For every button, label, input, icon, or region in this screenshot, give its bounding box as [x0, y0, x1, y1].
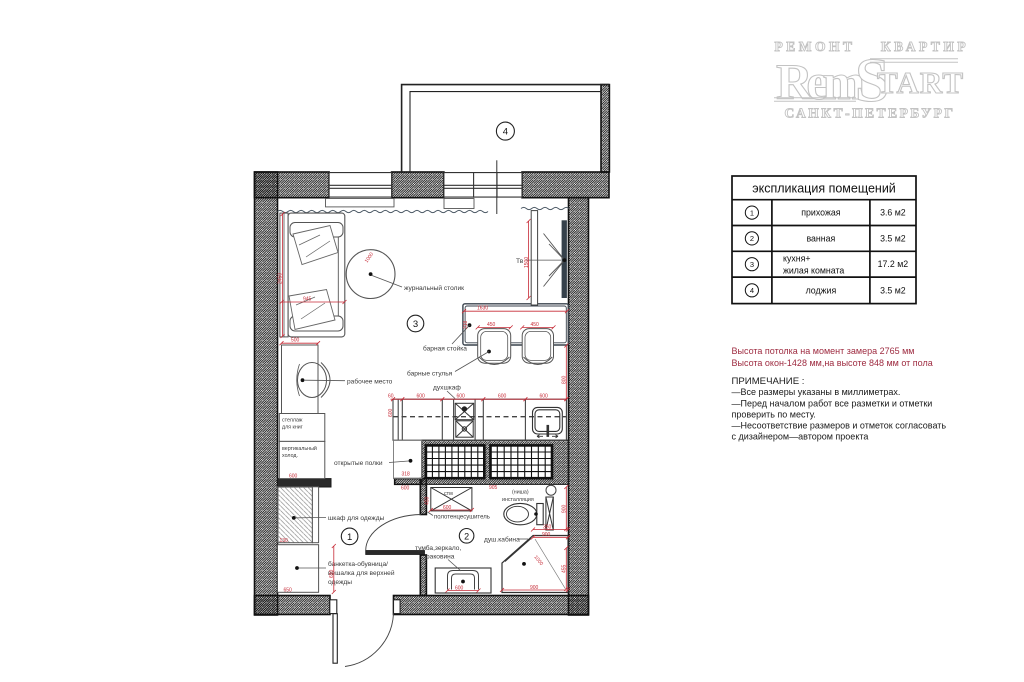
svg-text:600: 600 [498, 394, 507, 400]
svg-text:банкетка-обувница/: банкетка-обувница/ [328, 560, 388, 568]
svg-text:САНКТ-ПЕТЕРБУРГ: САНКТ-ПЕТЕРБУРГ [784, 106, 955, 121]
svg-text:650: 650 [284, 588, 293, 594]
svg-text:130: 130 [280, 538, 289, 544]
svg-text:3.6 м2: 3.6 м2 [880, 208, 906, 218]
svg-text:ванная: ванная [806, 233, 835, 243]
svg-text:945: 945 [303, 296, 312, 302]
svg-text:450: 450 [425, 496, 431, 505]
svg-text:Высота окон-1428 мм,на высоте: Высота окон-1428 мм,на высоте 848 мм от … [732, 358, 933, 368]
svg-text:1: 1 [347, 532, 352, 543]
svg-text:душ.кабина: душ.кабина [484, 536, 520, 544]
svg-text:лоджия: лоджия [806, 285, 837, 295]
svg-text:4: 4 [750, 286, 754, 295]
svg-text:Тв: Тв [516, 258, 524, 265]
svg-text:600: 600 [540, 394, 549, 400]
svg-text:барные стулья: барные стулья [407, 370, 453, 378]
svg-text:TART: TART [877, 65, 963, 100]
svg-text:экспликация помещений: экспликация помещений [752, 182, 896, 196]
svg-text:жилая комната: жилая комната [783, 266, 844, 276]
svg-text:800: 800 [562, 375, 568, 384]
svg-text:3.5 м2: 3.5 м2 [880, 233, 906, 243]
svg-text:вешалка для верхней: вешалка для верхней [328, 569, 395, 577]
svg-text:600: 600 [457, 394, 466, 400]
svg-text:3.5 м2: 3.5 м2 [880, 285, 906, 295]
svg-text:17.2 м2: 17.2 м2 [878, 259, 909, 269]
svg-text:открытые полки: открытые полки [334, 460, 383, 467]
svg-text:318: 318 [463, 320, 469, 329]
svg-text:2: 2 [750, 234, 754, 243]
svg-text:РЕМОНТ: РЕМОНТ [775, 39, 856, 54]
svg-text:900: 900 [562, 504, 568, 513]
svg-text:60: 60 [388, 394, 394, 400]
svg-text:1: 1 [750, 208, 754, 217]
svg-text:600: 600 [417, 394, 426, 400]
svg-text:Высота потолка на момент замер: Высота потолка на момент замера 2765 мм [732, 346, 915, 356]
svg-text:455: 455 [562, 564, 568, 573]
svg-text:кухня+: кухня+ [783, 254, 811, 264]
svg-text:стеллаж: стеллаж [282, 418, 303, 424]
svg-text:прихожая: прихожая [801, 208, 840, 218]
svg-text:900: 900 [542, 532, 551, 538]
svg-text:1630: 1630 [477, 306, 488, 312]
svg-text:450: 450 [487, 322, 496, 328]
svg-text:(ниша): (ниша) [512, 490, 529, 496]
svg-text:КВАРТИР: КВАРТИР [881, 39, 969, 54]
svg-text:с дизайнером—автором проекта: с дизайнером—автором проекта [732, 432, 869, 442]
svg-text:905: 905 [489, 485, 498, 491]
svg-text:1500: 1500 [524, 257, 530, 268]
svg-text:600: 600 [443, 505, 452, 511]
svg-text:2: 2 [464, 531, 469, 541]
svg-text:500: 500 [291, 338, 300, 344]
svg-text:600: 600 [388, 408, 394, 417]
svg-text:полотенцесушитель: полотенцесушитель [434, 515, 490, 521]
svg-text:тумба,зеркало,: тумба,зеркало, [415, 544, 461, 552]
svg-text:ПРИМЕЧАНИЕ :: ПРИМЕЧАНИЕ : [732, 376, 805, 387]
svg-text:раковина: раковина [426, 554, 455, 561]
svg-text:600: 600 [289, 474, 298, 480]
svg-text:одежды: одежды [328, 579, 352, 586]
svg-text:Rem: Rem [776, 55, 865, 111]
svg-text:2450: 2450 [278, 273, 284, 284]
svg-text:4: 4 [503, 127, 508, 138]
svg-text:журнальный столик: журнальный столик [404, 284, 464, 292]
svg-text:350: 350 [543, 524, 552, 530]
svg-text:600: 600 [455, 585, 464, 591]
svg-text:—Перед началом работ все разме: —Перед началом работ все разметки и отме… [732, 399, 933, 409]
svg-text:900: 900 [530, 585, 539, 591]
svg-text:барная стойка: барная стойка [423, 345, 467, 353]
svg-text:вертикальный: вертикальный [282, 445, 317, 452]
svg-text:рабочее место: рабочее место [347, 378, 393, 386]
svg-text:для книг: для книг [282, 425, 303, 431]
svg-text:духшкаф: духшкаф [433, 385, 461, 392]
svg-text:проверить по месту.: проверить по месту. [732, 410, 816, 420]
svg-text:—Все размеры указаны в миллиме: —Все размеры указаны в миллиметрах. [732, 387, 901, 397]
svg-text:инсталляция: инсталляция [502, 497, 534, 503]
svg-text:690: 690 [329, 569, 335, 578]
svg-text:стм: стм [444, 491, 453, 497]
svg-text:—Несоответствие размеров и отм: —Несоответствие размеров и отметок согла… [732, 421, 947, 431]
svg-text:318: 318 [402, 471, 411, 477]
svg-text:3: 3 [750, 260, 754, 269]
svg-text:450: 450 [531, 322, 540, 328]
svg-text:холод.: холод. [282, 453, 298, 459]
svg-text:3: 3 [413, 319, 418, 330]
svg-text:шкаф для одежды: шкаф для одежды [328, 515, 385, 522]
svg-text:600: 600 [401, 486, 410, 492]
